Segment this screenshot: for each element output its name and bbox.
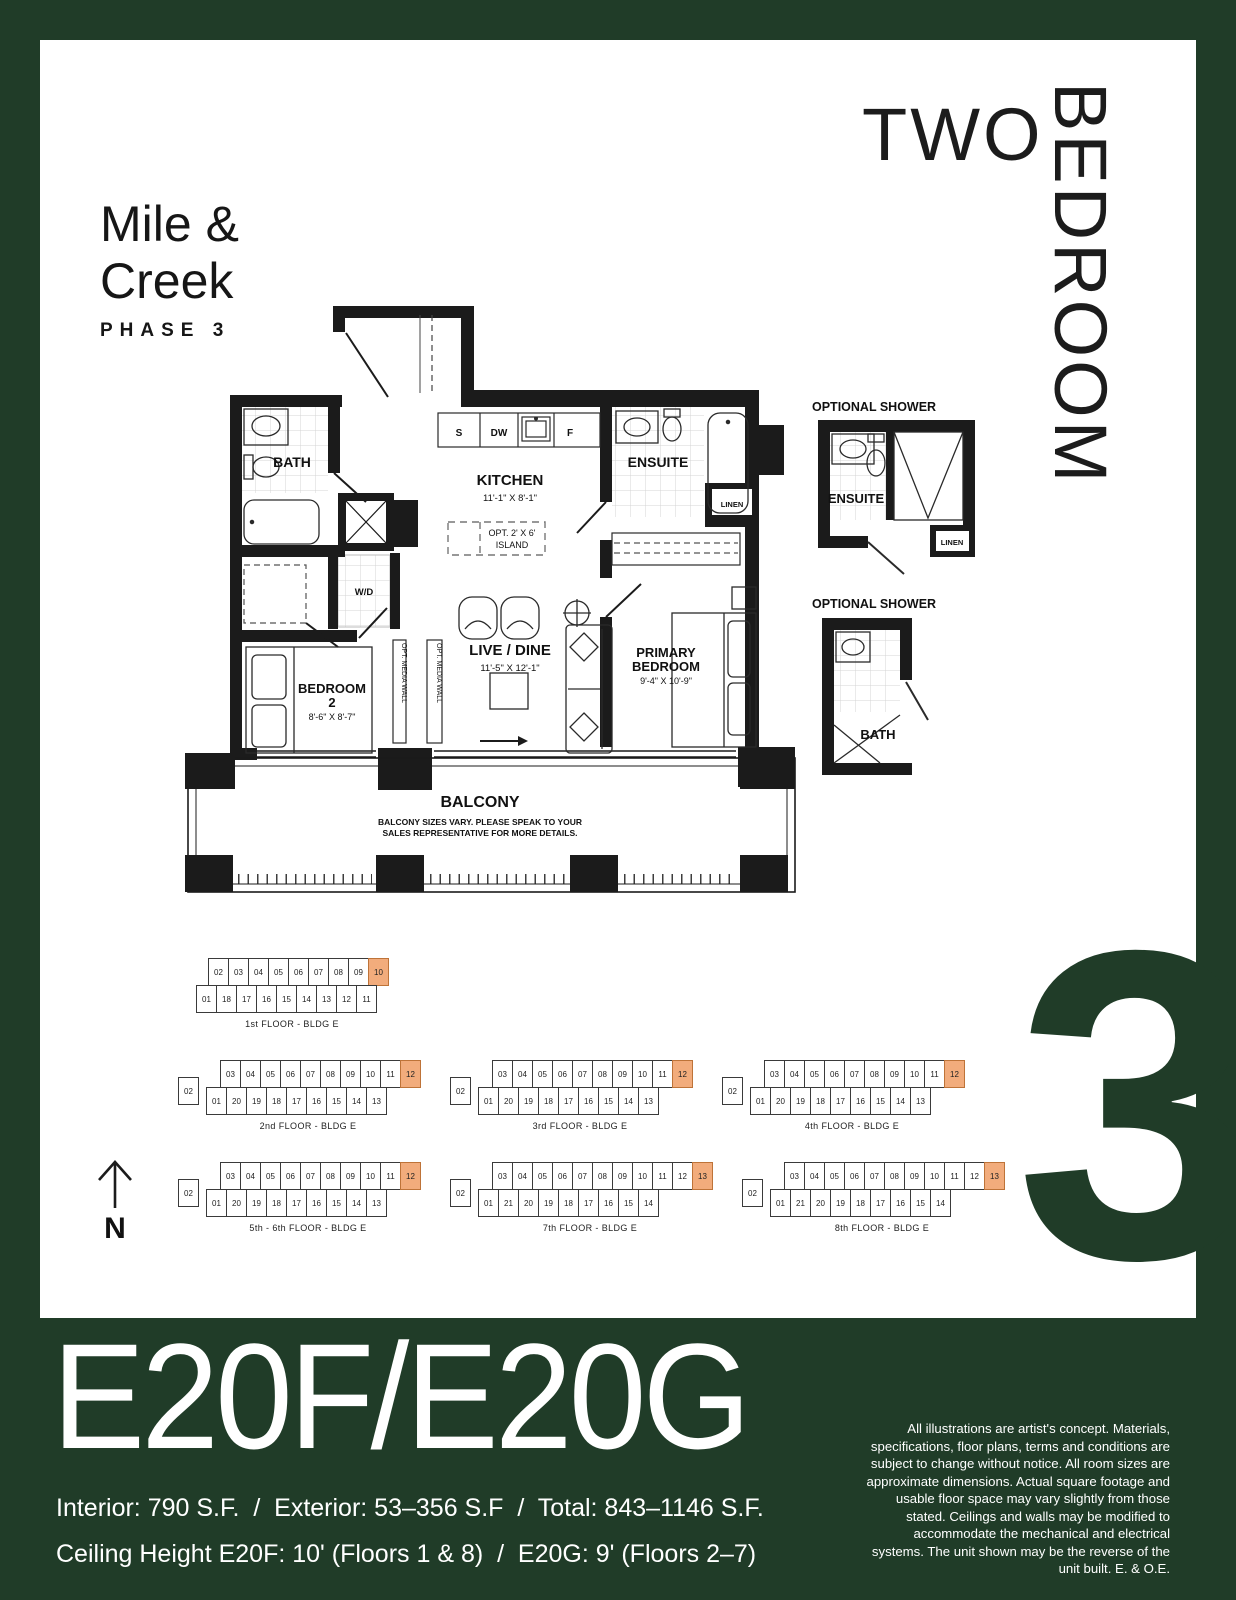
unit-cell-19: 19 xyxy=(246,1087,267,1115)
linen-label: LINEN xyxy=(721,500,744,509)
unit-cell-11: 11 xyxy=(652,1162,673,1190)
keyplate: 0304050607080910111213012120191817161514… xyxy=(450,1162,712,1233)
unit-cell-01: 01 xyxy=(196,985,217,1013)
unit-cell-14: 14 xyxy=(890,1087,911,1115)
unit-cell-10: 10 xyxy=(632,1162,653,1190)
unit-cell-10: 10 xyxy=(632,1060,653,1088)
unit-cell-02: 02 xyxy=(208,958,229,986)
unit-cell-12: 12 xyxy=(672,1060,693,1088)
unit-cell-04: 04 xyxy=(240,1060,261,1088)
unit-cell-15: 15 xyxy=(870,1087,891,1115)
unit-cell-14: 14 xyxy=(618,1087,639,1115)
primary-line2: BEDROOM xyxy=(632,659,700,674)
optional-shower-bath: OPTIONAL SHOWER BATH xyxy=(812,597,936,775)
unit-cell-02: 02 xyxy=(178,1077,199,1105)
unit-cell-09: 09 xyxy=(904,1162,925,1190)
bedroom2-line2: 2 xyxy=(328,695,335,710)
bath-label: BATH xyxy=(273,454,311,470)
unit-cell-18: 18 xyxy=(850,1189,871,1217)
appliance-dw-label: DW xyxy=(491,428,508,439)
balcony-note1: BALCONY SIZES VARY. PLEASE SPEAK TO YOUR xyxy=(378,817,582,827)
unit-cell-18: 18 xyxy=(538,1087,559,1115)
unit-cell-15: 15 xyxy=(598,1087,619,1115)
unit-cell-07: 07 xyxy=(572,1162,593,1190)
balcony-note2: SALES REPRESENTATIVE FOR MORE DETAILS. xyxy=(382,828,577,838)
unit-cell-13: 13 xyxy=(984,1162,1005,1190)
unit-cell-10: 10 xyxy=(368,958,389,986)
unit-cell-11: 11 xyxy=(944,1162,965,1190)
unit-cell-06: 06 xyxy=(280,1060,301,1088)
unit-cell-05: 05 xyxy=(804,1060,825,1088)
unit-cell-17: 17 xyxy=(236,985,257,1013)
unit-cell-06: 06 xyxy=(552,1162,573,1190)
unit-cell-17: 17 xyxy=(830,1087,851,1115)
appliance-f-label: F xyxy=(567,428,573,439)
keyplate-caption: 5th - 6th FLOOR - BLDG E xyxy=(196,1223,420,1233)
unit-cell-19: 19 xyxy=(830,1189,851,1217)
bed-bedroom2 xyxy=(246,647,372,753)
unit-cell-20: 20 xyxy=(810,1189,831,1217)
unit-cell-16: 16 xyxy=(598,1189,619,1217)
unit-cell-09: 09 xyxy=(612,1162,633,1190)
unit-cell-15: 15 xyxy=(910,1189,931,1217)
unit-cell-06: 06 xyxy=(824,1060,845,1088)
unit-cell-01: 01 xyxy=(478,1087,499,1115)
keyplate: 0304050607080910111201201918171615141302… xyxy=(722,1060,964,1131)
unit-cell-16: 16 xyxy=(306,1189,327,1217)
livedine-label: LIVE / DINE xyxy=(469,642,551,659)
unit-cell-10: 10 xyxy=(360,1060,381,1088)
unit-cell-03: 03 xyxy=(764,1060,785,1088)
unit-cell-09: 09 xyxy=(884,1060,905,1088)
media-wall-label-2: OPT. MEDIA WALL xyxy=(435,643,442,703)
kitchen-island xyxy=(448,522,545,555)
unit-cell-05: 05 xyxy=(532,1060,553,1088)
unit-cell-07: 07 xyxy=(864,1162,885,1190)
unit-cell-16: 16 xyxy=(850,1087,871,1115)
unit-cell-16: 16 xyxy=(890,1189,911,1217)
unit-cell-17: 17 xyxy=(578,1189,599,1217)
keyplate: 0304050607080910111201201918171615141302… xyxy=(178,1060,420,1131)
unit-cell-15: 15 xyxy=(276,985,297,1013)
unit-cell-12: 12 xyxy=(336,985,357,1013)
unit-cell-11: 11 xyxy=(652,1060,673,1088)
unit-cell-03: 03 xyxy=(228,958,249,986)
kitchen-dims: 11'-1" X 8'-1" xyxy=(483,493,537,504)
unit-cell-02: 02 xyxy=(450,1077,471,1105)
unit-cell-05: 05 xyxy=(532,1162,553,1190)
unit-cell-01: 01 xyxy=(206,1087,227,1115)
keyplate-caption: 7th FLOOR - BLDG E xyxy=(468,1223,712,1233)
unit-cell-20: 20 xyxy=(226,1189,247,1217)
unit-cell-03: 03 xyxy=(492,1060,513,1088)
unit-cell-21: 21 xyxy=(498,1189,519,1217)
livedine-dims: 11'-5" X 12'-1" xyxy=(480,663,539,674)
area-stats: Interior: 790 S.F. / Exterior: 53–356 S.… xyxy=(56,1494,764,1523)
unit-cell-08: 08 xyxy=(320,1060,341,1088)
unit-cell-10: 10 xyxy=(904,1060,925,1088)
unit-cell-02: 02 xyxy=(742,1179,763,1207)
unit-cell-08: 08 xyxy=(328,958,349,986)
unit-cell-09: 09 xyxy=(348,958,369,986)
unit-cell-01: 01 xyxy=(478,1189,499,1217)
closet-bedroom2 xyxy=(244,565,306,623)
unit-cell-10: 10 xyxy=(924,1162,945,1190)
unit-cell-17: 17 xyxy=(558,1087,579,1115)
disclaimer: All illustrations are artist's concept. … xyxy=(858,1420,1170,1578)
north-label: N xyxy=(104,1212,126,1245)
unit-cell-14: 14 xyxy=(638,1189,659,1217)
island-line1: OPT. 2' X 6' xyxy=(489,528,536,538)
wd-label: W/D xyxy=(355,587,374,598)
unit-cell-14: 14 xyxy=(930,1189,951,1217)
unit-cell-12: 12 xyxy=(964,1162,985,1190)
unit-cell-04: 04 xyxy=(512,1060,533,1088)
keyplate-caption: 2nd FLOOR - BLDG E xyxy=(196,1121,420,1131)
primary-line1: PRIMARY xyxy=(636,645,696,660)
unit-cell-02: 02 xyxy=(450,1179,471,1207)
unit-cell-15: 15 xyxy=(326,1087,347,1115)
shower1-room-label: ENSUITE xyxy=(828,491,885,506)
unit-cell-12: 12 xyxy=(944,1060,965,1088)
headline-two: TWO xyxy=(862,92,1044,177)
unit-cell-15: 15 xyxy=(326,1189,347,1217)
unit-cell-04: 04 xyxy=(512,1162,533,1190)
unit-cell-12: 12 xyxy=(400,1060,421,1088)
unit-cell-20: 20 xyxy=(226,1087,247,1115)
unit-cell-08: 08 xyxy=(592,1060,613,1088)
windows xyxy=(257,751,736,757)
unit-cell-17: 17 xyxy=(870,1189,891,1217)
unit-cell-18: 18 xyxy=(558,1189,579,1217)
balcony-label: BALCONY xyxy=(440,794,519,811)
shower1-title: OPTIONAL SHOWER xyxy=(812,400,936,414)
brand-line1: Mile & xyxy=(100,196,239,253)
unit-cell-05: 05 xyxy=(260,1162,281,1190)
unit-cell-09: 09 xyxy=(612,1060,633,1088)
ceiling-heights: Ceiling Height E20F: 10' (Floors 1 & 8) … xyxy=(56,1540,756,1569)
headline-bedroom: BEDROOM xyxy=(1038,82,1123,485)
appliance-s-label: S xyxy=(456,428,463,439)
unit-cell-06: 06 xyxy=(280,1162,301,1190)
north-arrow: N xyxy=(85,1150,145,1245)
unit-cell-16: 16 xyxy=(256,985,277,1013)
unit-cell-18: 18 xyxy=(216,985,237,1013)
bedroom2-line1: BEDROOM xyxy=(298,681,366,696)
unit-cell-19: 19 xyxy=(518,1087,539,1115)
shower2-room-label: BATH xyxy=(860,727,895,742)
unit-cell-16: 16 xyxy=(306,1087,327,1115)
unit-cell-07: 07 xyxy=(300,1060,321,1088)
unit-cell-11: 11 xyxy=(356,985,377,1013)
unit-cell-12: 12 xyxy=(400,1162,421,1190)
unit-cell-11: 11 xyxy=(380,1060,401,1088)
balcony-door-arrow xyxy=(480,736,528,746)
unit-cell-17: 17 xyxy=(286,1189,307,1217)
unit-cell-08: 08 xyxy=(884,1162,905,1190)
unit-cell-02: 02 xyxy=(722,1077,743,1105)
shower2-title: OPTIONAL SHOWER xyxy=(812,597,936,611)
unit-cell-15: 15 xyxy=(618,1189,639,1217)
unit-cell-16: 16 xyxy=(578,1087,599,1115)
keyplate-row-1: 0203040506070809100118171615141312111st … xyxy=(178,958,388,1029)
unit-cell-13: 13 xyxy=(316,985,337,1013)
keyplate: 0304050607080910111213012120191817161514… xyxy=(742,1162,1004,1233)
plan-name: E20F/E20G xyxy=(52,1318,747,1476)
unit-cell-14: 14 xyxy=(346,1087,367,1115)
unit-cell-21: 21 xyxy=(790,1189,811,1217)
unit-cell-18: 18 xyxy=(266,1087,287,1115)
keyplate-caption: 3rd FLOOR - BLDG E xyxy=(468,1121,692,1131)
keyplate: 0304050607080910111201201918171615141302… xyxy=(178,1162,420,1233)
vestibule-closet xyxy=(420,315,432,393)
unit-cell-13: 13 xyxy=(910,1087,931,1115)
unit-cell-08: 08 xyxy=(592,1162,613,1190)
keyplate-caption: 4th FLOOR - BLDG E xyxy=(740,1121,964,1131)
kitchen-label: KITCHEN xyxy=(477,472,544,489)
unit-cell-04: 04 xyxy=(248,958,269,986)
unit-cell-13: 13 xyxy=(366,1087,387,1115)
island-line2: ISLAND xyxy=(496,540,529,550)
unit-cell-14: 14 xyxy=(346,1189,367,1217)
phase-numeral: 3 xyxy=(1015,886,1236,1326)
keyplate: 0304050607080910111201201918171615141302… xyxy=(450,1060,692,1131)
floorplan-svg: S DW F xyxy=(180,295,980,915)
unit-cell-07: 07 xyxy=(308,958,329,986)
bedroom2-dims: 8'-6" X 8'-7" xyxy=(309,712,356,722)
unit-cell-11: 11 xyxy=(924,1060,945,1088)
living-furniture xyxy=(459,597,612,753)
keyplate-caption: 8th FLOOR - BLDG E xyxy=(760,1223,1004,1233)
unit-cell-02: 02 xyxy=(178,1179,199,1207)
unit-cell-20: 20 xyxy=(518,1189,539,1217)
keyplate-caption: 1st FLOOR - BLDG E xyxy=(196,1019,388,1029)
keyplate-row-2: 0304050607080910111201201918171615141302… xyxy=(178,1060,964,1131)
unit-cell-19: 19 xyxy=(538,1189,559,1217)
unit-cell-20: 20 xyxy=(498,1087,519,1115)
unit-cell-06: 06 xyxy=(288,958,309,986)
unit-cell-04: 04 xyxy=(784,1060,805,1088)
unit-cell-08: 08 xyxy=(320,1162,341,1190)
shower1-linen-label: LINEN xyxy=(941,538,964,547)
unit-cell-18: 18 xyxy=(810,1087,831,1115)
unit-cell-19: 19 xyxy=(246,1189,267,1217)
unit-cell-05: 05 xyxy=(824,1162,845,1190)
unit-cell-18: 18 xyxy=(266,1189,287,1217)
keyplate-row-3: 0304050607080910111201201918171615141302… xyxy=(178,1162,1004,1233)
unit-cell-05: 05 xyxy=(260,1060,281,1088)
unit-cell-03: 03 xyxy=(784,1162,805,1190)
unit-cell-09: 09 xyxy=(340,1162,361,1190)
unit-cell-09: 09 xyxy=(340,1060,361,1088)
unit-cell-03: 03 xyxy=(220,1060,241,1088)
unit-cell-03: 03 xyxy=(220,1162,241,1190)
unit-cell-14: 14 xyxy=(296,985,317,1013)
unit-cell-04: 04 xyxy=(804,1162,825,1190)
unit-cell-01: 01 xyxy=(770,1189,791,1217)
unit-cell-07: 07 xyxy=(844,1060,865,1088)
north-arrow-icon xyxy=(99,1162,131,1208)
media-wall-label-1: OPT. MEDIA WALL xyxy=(400,643,407,703)
ensuite-label: ENSUITE xyxy=(628,454,689,470)
unit-cell-20: 20 xyxy=(770,1087,791,1115)
unit-cell-13: 13 xyxy=(638,1087,659,1115)
unit-cell-10: 10 xyxy=(360,1162,381,1190)
primary-dims: 9'-4" X 10'-9" xyxy=(640,676,692,686)
unit-cell-05: 05 xyxy=(268,958,289,986)
primary-closet xyxy=(612,533,740,565)
unit-cell-06: 06 xyxy=(844,1162,865,1190)
unit-cell-13: 13 xyxy=(692,1162,713,1190)
unit-cell-11: 11 xyxy=(380,1162,401,1190)
unit-cell-13: 13 xyxy=(366,1189,387,1217)
unit-cell-01: 01 xyxy=(206,1189,227,1217)
unit-cell-04: 04 xyxy=(240,1162,261,1190)
unit-cell-06: 06 xyxy=(552,1060,573,1088)
unit-cell-12: 12 xyxy=(672,1162,693,1190)
page: Mile & Creek PHASE 3 TWO BEDROOM xyxy=(0,0,1236,1600)
optional-shower-ensuite: OPTIONAL SHOWER ENSUITE LINEN xyxy=(812,400,975,574)
unit-cell-01: 01 xyxy=(750,1087,771,1115)
unit-cell-07: 07 xyxy=(572,1060,593,1088)
unit-cell-08: 08 xyxy=(864,1060,885,1088)
unit-cell-07: 07 xyxy=(300,1162,321,1190)
unit-cell-03: 03 xyxy=(492,1162,513,1190)
unit-cell-17: 17 xyxy=(286,1087,307,1115)
keyplate: 0203040506070809100118171615141312111st … xyxy=(178,958,388,1029)
unit-cell-19: 19 xyxy=(790,1087,811,1115)
